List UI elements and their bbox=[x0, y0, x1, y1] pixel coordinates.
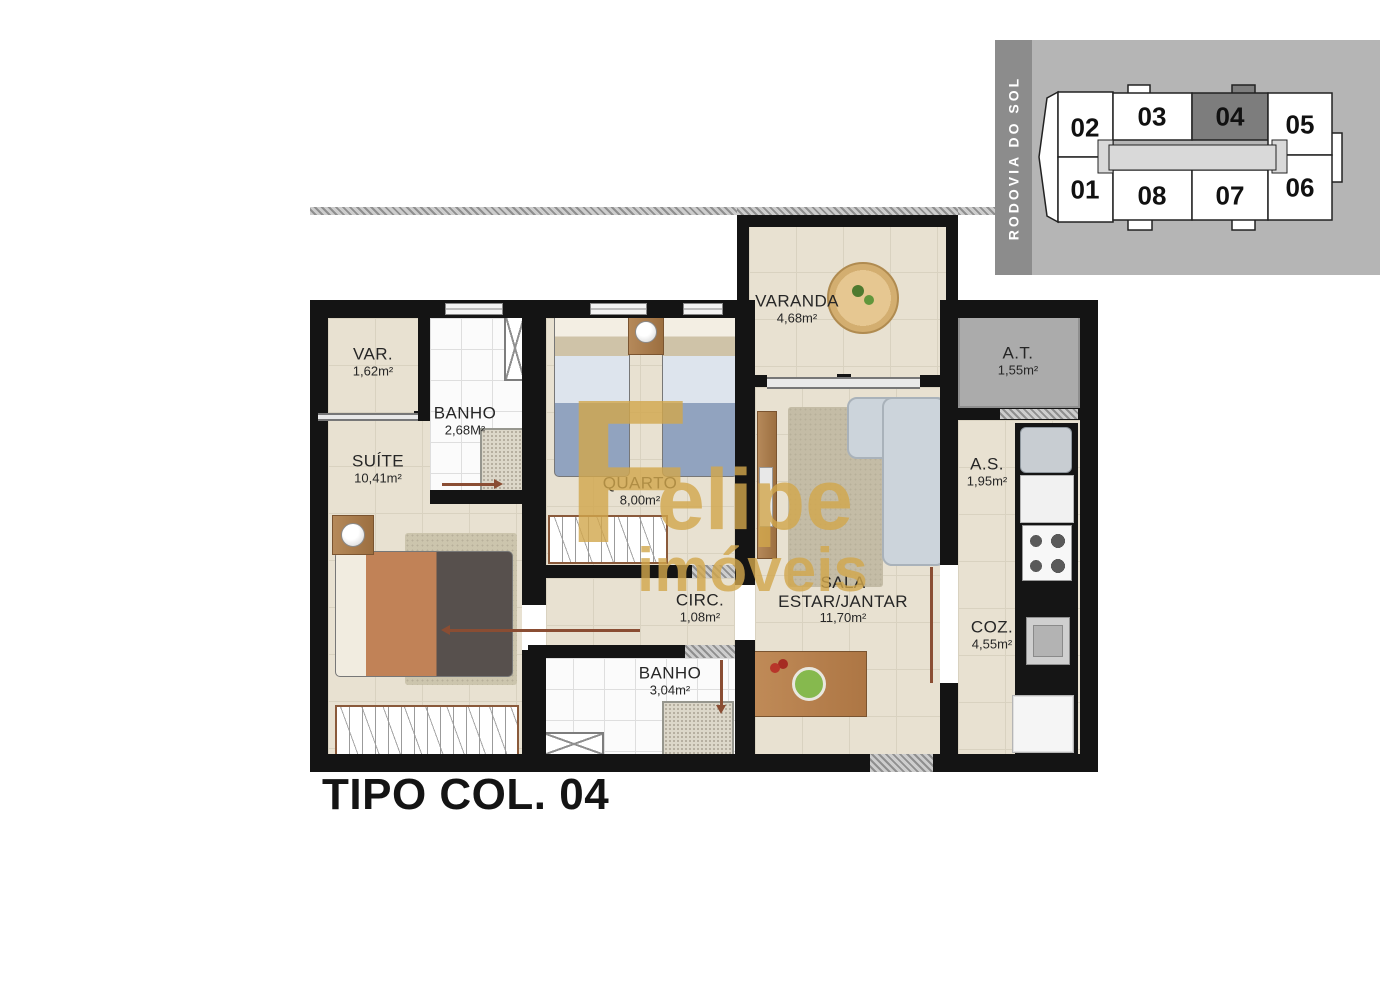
varanda-wall-top bbox=[737, 215, 958, 227]
window-banho-suite bbox=[445, 303, 503, 315]
room-label-quarto: QUARTO 8,00m² bbox=[603, 475, 678, 508]
fridge bbox=[1012, 695, 1074, 753]
floor-plan: VAR. 1,62m² BANHO 2,68M² QUARTO 8,00m² V… bbox=[310, 215, 1100, 772]
key-plan: RODOVIA DO SOL 02 bbox=[995, 40, 1380, 275]
wall-right bbox=[1080, 300, 1098, 772]
varanda-plant-2 bbox=[864, 295, 874, 305]
banho-social-door-arrow bbox=[716, 705, 726, 714]
unit-number-06: 06 bbox=[1286, 173, 1315, 204]
unit-number-05: 05 bbox=[1286, 110, 1315, 141]
unit-number-03: 03 bbox=[1138, 102, 1167, 133]
room-label-var: VAR. 1,62m² bbox=[353, 346, 393, 379]
banho-suite-door-line bbox=[442, 483, 494, 486]
window-quarto-2 bbox=[683, 303, 723, 315]
quarto-bed-2 bbox=[662, 313, 738, 477]
unit-number-02: 02 bbox=[1071, 113, 1100, 144]
room-label-circ: CIRC. 1,08m² bbox=[676, 592, 724, 625]
suite-lamp bbox=[341, 523, 365, 547]
kitchen-sink-basin bbox=[1033, 625, 1063, 657]
unit-number-01: 01 bbox=[1071, 175, 1100, 206]
sofa-body bbox=[882, 397, 946, 566]
floor-plan-sheet: VAR. 1,62m² BANHO 2,68M² QUARTO 8,00m² V… bbox=[0, 0, 1400, 990]
quarto-lamp bbox=[635, 321, 657, 343]
quarto-wardrobe bbox=[548, 515, 668, 564]
tv bbox=[759, 467, 773, 527]
banho-social-wall-top bbox=[528, 645, 685, 658]
room-label-varanda: VARANDA 4,68m² bbox=[755, 293, 839, 326]
banho-suite-door-arrow bbox=[494, 479, 503, 489]
varanda-hatch-top bbox=[737, 207, 958, 215]
plan-title: TIPO COL. 04 bbox=[322, 770, 609, 820]
room-label-sala: SALA ESTAR/JANTAR 11,70m² bbox=[778, 574, 908, 626]
circ-sala-divider bbox=[735, 640, 755, 754]
var-banho-divider bbox=[418, 300, 430, 421]
wall-left bbox=[310, 300, 328, 772]
building-outline bbox=[995, 40, 1380, 275]
varanda-sliding-door bbox=[767, 377, 920, 389]
room-label-banho-social: BANHO 3,04m² bbox=[639, 665, 701, 698]
unit-number-08: 08 bbox=[1138, 181, 1167, 212]
room-label-coz: COZ. 4,55m² bbox=[971, 619, 1013, 652]
room-label-banho-suite: BANHO 2,68M² bbox=[434, 405, 496, 438]
banho-social-door-threshold bbox=[685, 645, 735, 658]
suite-double-bed bbox=[335, 551, 513, 677]
var-suite-glass-door bbox=[318, 413, 418, 421]
room-label-at: A.T. 1,55m² bbox=[998, 345, 1038, 378]
at-wall-left bbox=[940, 300, 958, 420]
entry-threshold bbox=[870, 754, 933, 772]
window-quarto-1 bbox=[590, 303, 647, 315]
suite-door-line bbox=[450, 629, 640, 632]
corridor bbox=[1109, 145, 1276, 170]
quarto-sala-divider bbox=[735, 300, 755, 585]
kitchen-door-leaf bbox=[930, 567, 933, 683]
unit-number-04: 04 bbox=[1216, 102, 1245, 133]
unit-number-07: 07 bbox=[1216, 181, 1245, 212]
room-label-as: A.S. 1,95m² bbox=[967, 456, 1007, 489]
banho-social-door-leaf bbox=[720, 660, 723, 705]
table-items bbox=[770, 663, 780, 673]
washing-machine bbox=[1020, 475, 1074, 523]
quarto-door-threshold bbox=[692, 565, 735, 578]
water-tank bbox=[1020, 427, 1072, 473]
hatch-top-left bbox=[310, 207, 755, 215]
coz-wall-left bbox=[940, 683, 958, 754]
as-wall-left bbox=[940, 420, 958, 565]
varanda-plant bbox=[852, 285, 864, 297]
at-bottom-hatch bbox=[1000, 409, 1078, 419]
suite-door-arrow bbox=[441, 625, 450, 635]
quarto-bed-1 bbox=[554, 313, 630, 477]
building-left-tip bbox=[1039, 92, 1058, 222]
stove bbox=[1022, 525, 1072, 581]
banho-suite-wall-bottom bbox=[430, 490, 522, 504]
suite-wardrobe bbox=[335, 705, 519, 756]
quarto-wall-bottom bbox=[546, 565, 692, 578]
divider-left-column-a bbox=[522, 300, 546, 605]
divider-left-column-b bbox=[522, 650, 546, 754]
fruit-bowl bbox=[792, 667, 826, 701]
banho-social-cabinet bbox=[544, 732, 604, 756]
wall-top-right bbox=[940, 300, 1098, 318]
room-label-suite: SUÍTE 10,41m² bbox=[352, 453, 404, 486]
varanda-wall-right bbox=[946, 215, 958, 305]
